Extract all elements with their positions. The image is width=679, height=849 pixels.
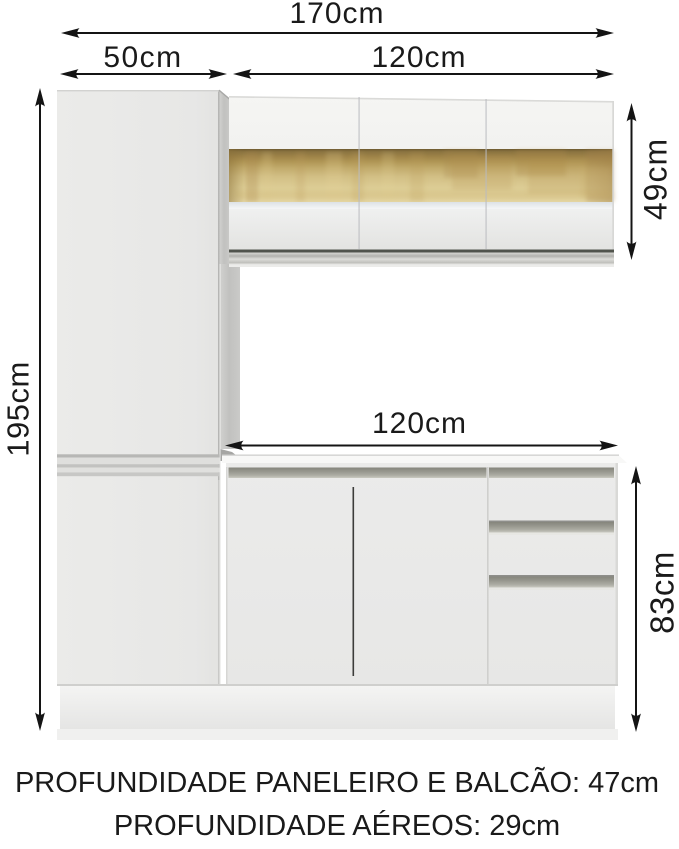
svg-text:195cm: 195cm bbox=[1, 361, 36, 457]
svg-text:49cm: 49cm bbox=[638, 138, 674, 220]
svg-text:120cm: 120cm bbox=[371, 41, 466, 74]
svg-text:170cm: 170cm bbox=[289, 0, 384, 30]
svg-text:83cm: 83cm bbox=[644, 551, 679, 634]
svg-text:PROFUNDIDADE AÉREOS: 29cm: PROFUNDIDADE AÉREOS: 29cm bbox=[114, 809, 560, 842]
svg-text:50cm: 50cm bbox=[103, 41, 182, 74]
svg-text:120cm: 120cm bbox=[372, 407, 467, 440]
svg-text:PROFUNDIDADE PANELEIRO E BALCÃ: PROFUNDIDADE PANELEIRO E BALCÃO: 47cm bbox=[15, 765, 659, 799]
